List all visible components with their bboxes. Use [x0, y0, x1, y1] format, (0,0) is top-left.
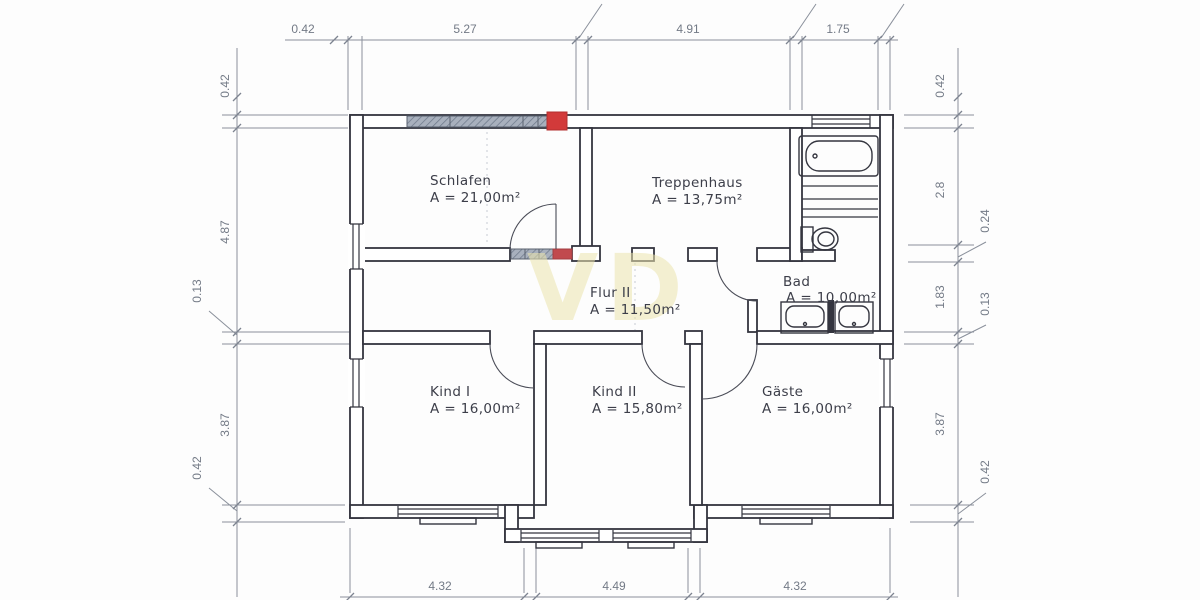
window-kind1-left — [348, 359, 365, 407]
dim-top-4: 1.75 — [826, 22, 850, 36]
room-label-gaeste: Gäste — [762, 384, 803, 400]
window-schlafen-left — [348, 224, 365, 269]
wall-flur-top-left — [363, 248, 510, 261]
floorplan-page: 0.42 5.27 4.91 1.75 4.32 4.49 4.32 0.42 … — [0, 0, 1200, 600]
sill-gaeste — [760, 518, 812, 524]
floorplan-drawing: 0.42 5.27 4.91 1.75 4.32 4.49 4.32 0.42 … — [0, 0, 1200, 600]
sill-bay-right — [628, 542, 674, 548]
wall-right — [880, 115, 893, 518]
room-area-flur2: A = 11,50m² — [590, 302, 681, 318]
room-area-schlafen: A = 21,00m² — [430, 190, 521, 206]
dim-top-1: 0.42 — [291, 22, 315, 36]
dim-right-2: 2.8 — [933, 181, 947, 198]
door-kind1 — [490, 344, 534, 388]
dim-right-4: 1.83 — [933, 285, 947, 309]
room-label-flur2: Flur II — [590, 285, 631, 301]
room-area-gaeste: A = 16,00m² — [762, 401, 853, 417]
dim-left-4: 3.87 — [218, 413, 232, 437]
dim-left-2: 4.87 — [218, 220, 232, 244]
toilet — [801, 227, 838, 252]
room-label-treppenhaus: Treppenhaus — [651, 175, 743, 191]
window-gaeste-bottom — [742, 506, 830, 517]
dim-top-3: 4.91 — [676, 22, 700, 36]
room-label-bad: Bad — [783, 274, 810, 290]
stairs — [802, 186, 878, 217]
dim-bottom-3: 4.32 — [783, 579, 807, 593]
room-area-bad: A = 10,00m² — [786, 290, 877, 306]
room-label-schlafen: Schlafen — [430, 173, 491, 189]
sill-bay-left — [536, 542, 582, 548]
room-label-kind2: Kind II — [592, 384, 637, 400]
window-kind1-bottom — [398, 506, 498, 517]
dim-top-2: 5.27 — [453, 22, 477, 36]
sill-kind1 — [420, 518, 476, 524]
wall-schlafen-treppenhaus — [580, 128, 592, 250]
wall-flur-top-mid — [688, 248, 717, 261]
dim-right-1: 0.42 — [933, 74, 947, 98]
dim-right-6: 3.87 — [933, 412, 947, 436]
dim-left-5: 0.42 — [190, 456, 204, 480]
door-gaeste — [702, 344, 757, 399]
door-kind2 — [642, 344, 685, 387]
dim-left-3: 0.13 — [190, 279, 204, 303]
wall-left — [350, 115, 363, 518]
room-area-treppenhaus: A = 13,75m² — [652, 192, 743, 208]
door-bad — [717, 261, 757, 301]
dim-left-1: 0.42 — [218, 74, 232, 98]
wall-flur-bottom-a — [363, 331, 490, 344]
dim-right-7: 0.42 — [978, 460, 992, 484]
room-area-kind1: A = 16,00m² — [430, 401, 521, 417]
window-bad-top — [812, 116, 870, 127]
wall-treppenhaus-right — [790, 128, 802, 261]
window-gaeste-right — [879, 359, 894, 407]
room-label-kind1: Kind I — [430, 384, 470, 400]
wall-bad-stub — [748, 300, 757, 332]
wall-kind2-gaeste — [690, 344, 702, 505]
dim-bottom-2: 4.49 — [602, 579, 626, 593]
room-area-kind2: A = 15,80m² — [592, 401, 683, 417]
dim-right-5: 0.13 — [978, 292, 992, 316]
bathtub — [799, 136, 878, 176]
window-bay-left — [521, 530, 599, 541]
dim-right-3: 0.24 — [978, 209, 992, 233]
wall-kind1-kind2 — [534, 344, 546, 505]
dim-bottom-1: 4.32 — [428, 579, 452, 593]
window-bay-right — [613, 530, 691, 541]
